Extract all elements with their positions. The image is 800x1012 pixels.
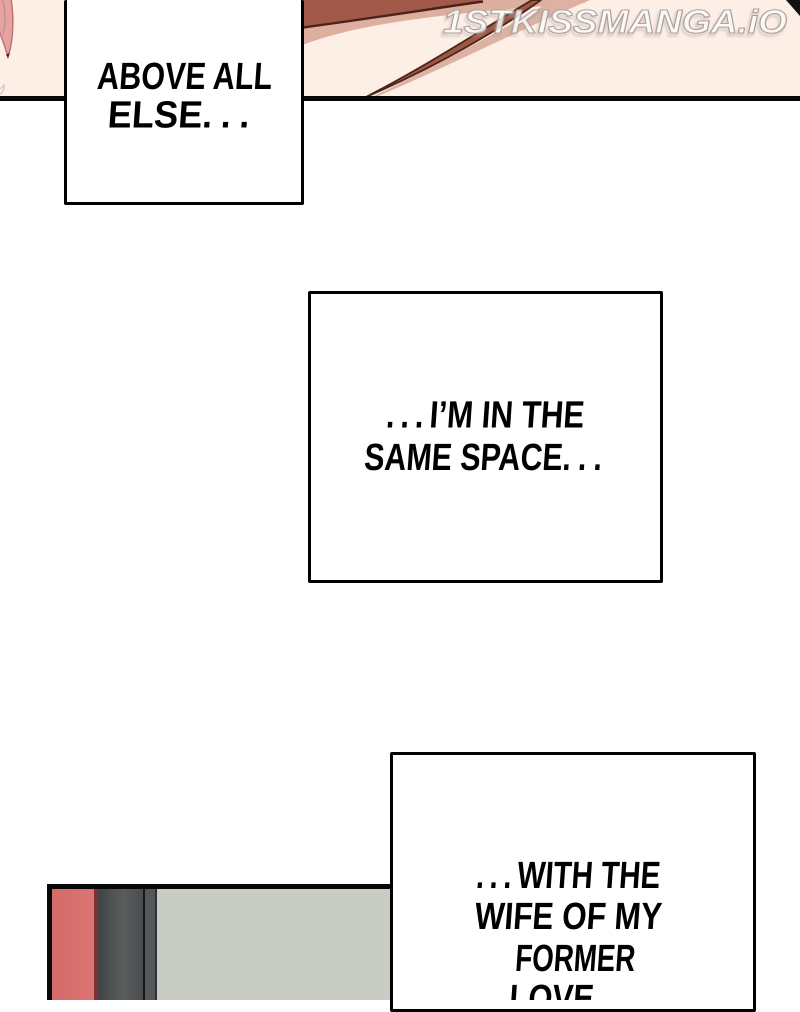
svg-text:LOVE...: LOVE... bbox=[508, 978, 636, 1000]
svg-text:ELSE...: ELSE... bbox=[106, 95, 251, 137]
svg-text:...WITH THE: ...WITH THE bbox=[475, 855, 662, 897]
svg-text:ABOVE ALL: ABOVE ALL bbox=[96, 56, 274, 98]
svg-text:WIFE OF MY: WIFE OF MY bbox=[473, 896, 663, 938]
svg-text:FORMER: FORMER bbox=[514, 938, 637, 980]
svg-text:...I’M IN THE: ...I’M IN THE bbox=[385, 395, 586, 437]
svg-text:SAME SPACE...: SAME SPACE... bbox=[363, 437, 604, 479]
